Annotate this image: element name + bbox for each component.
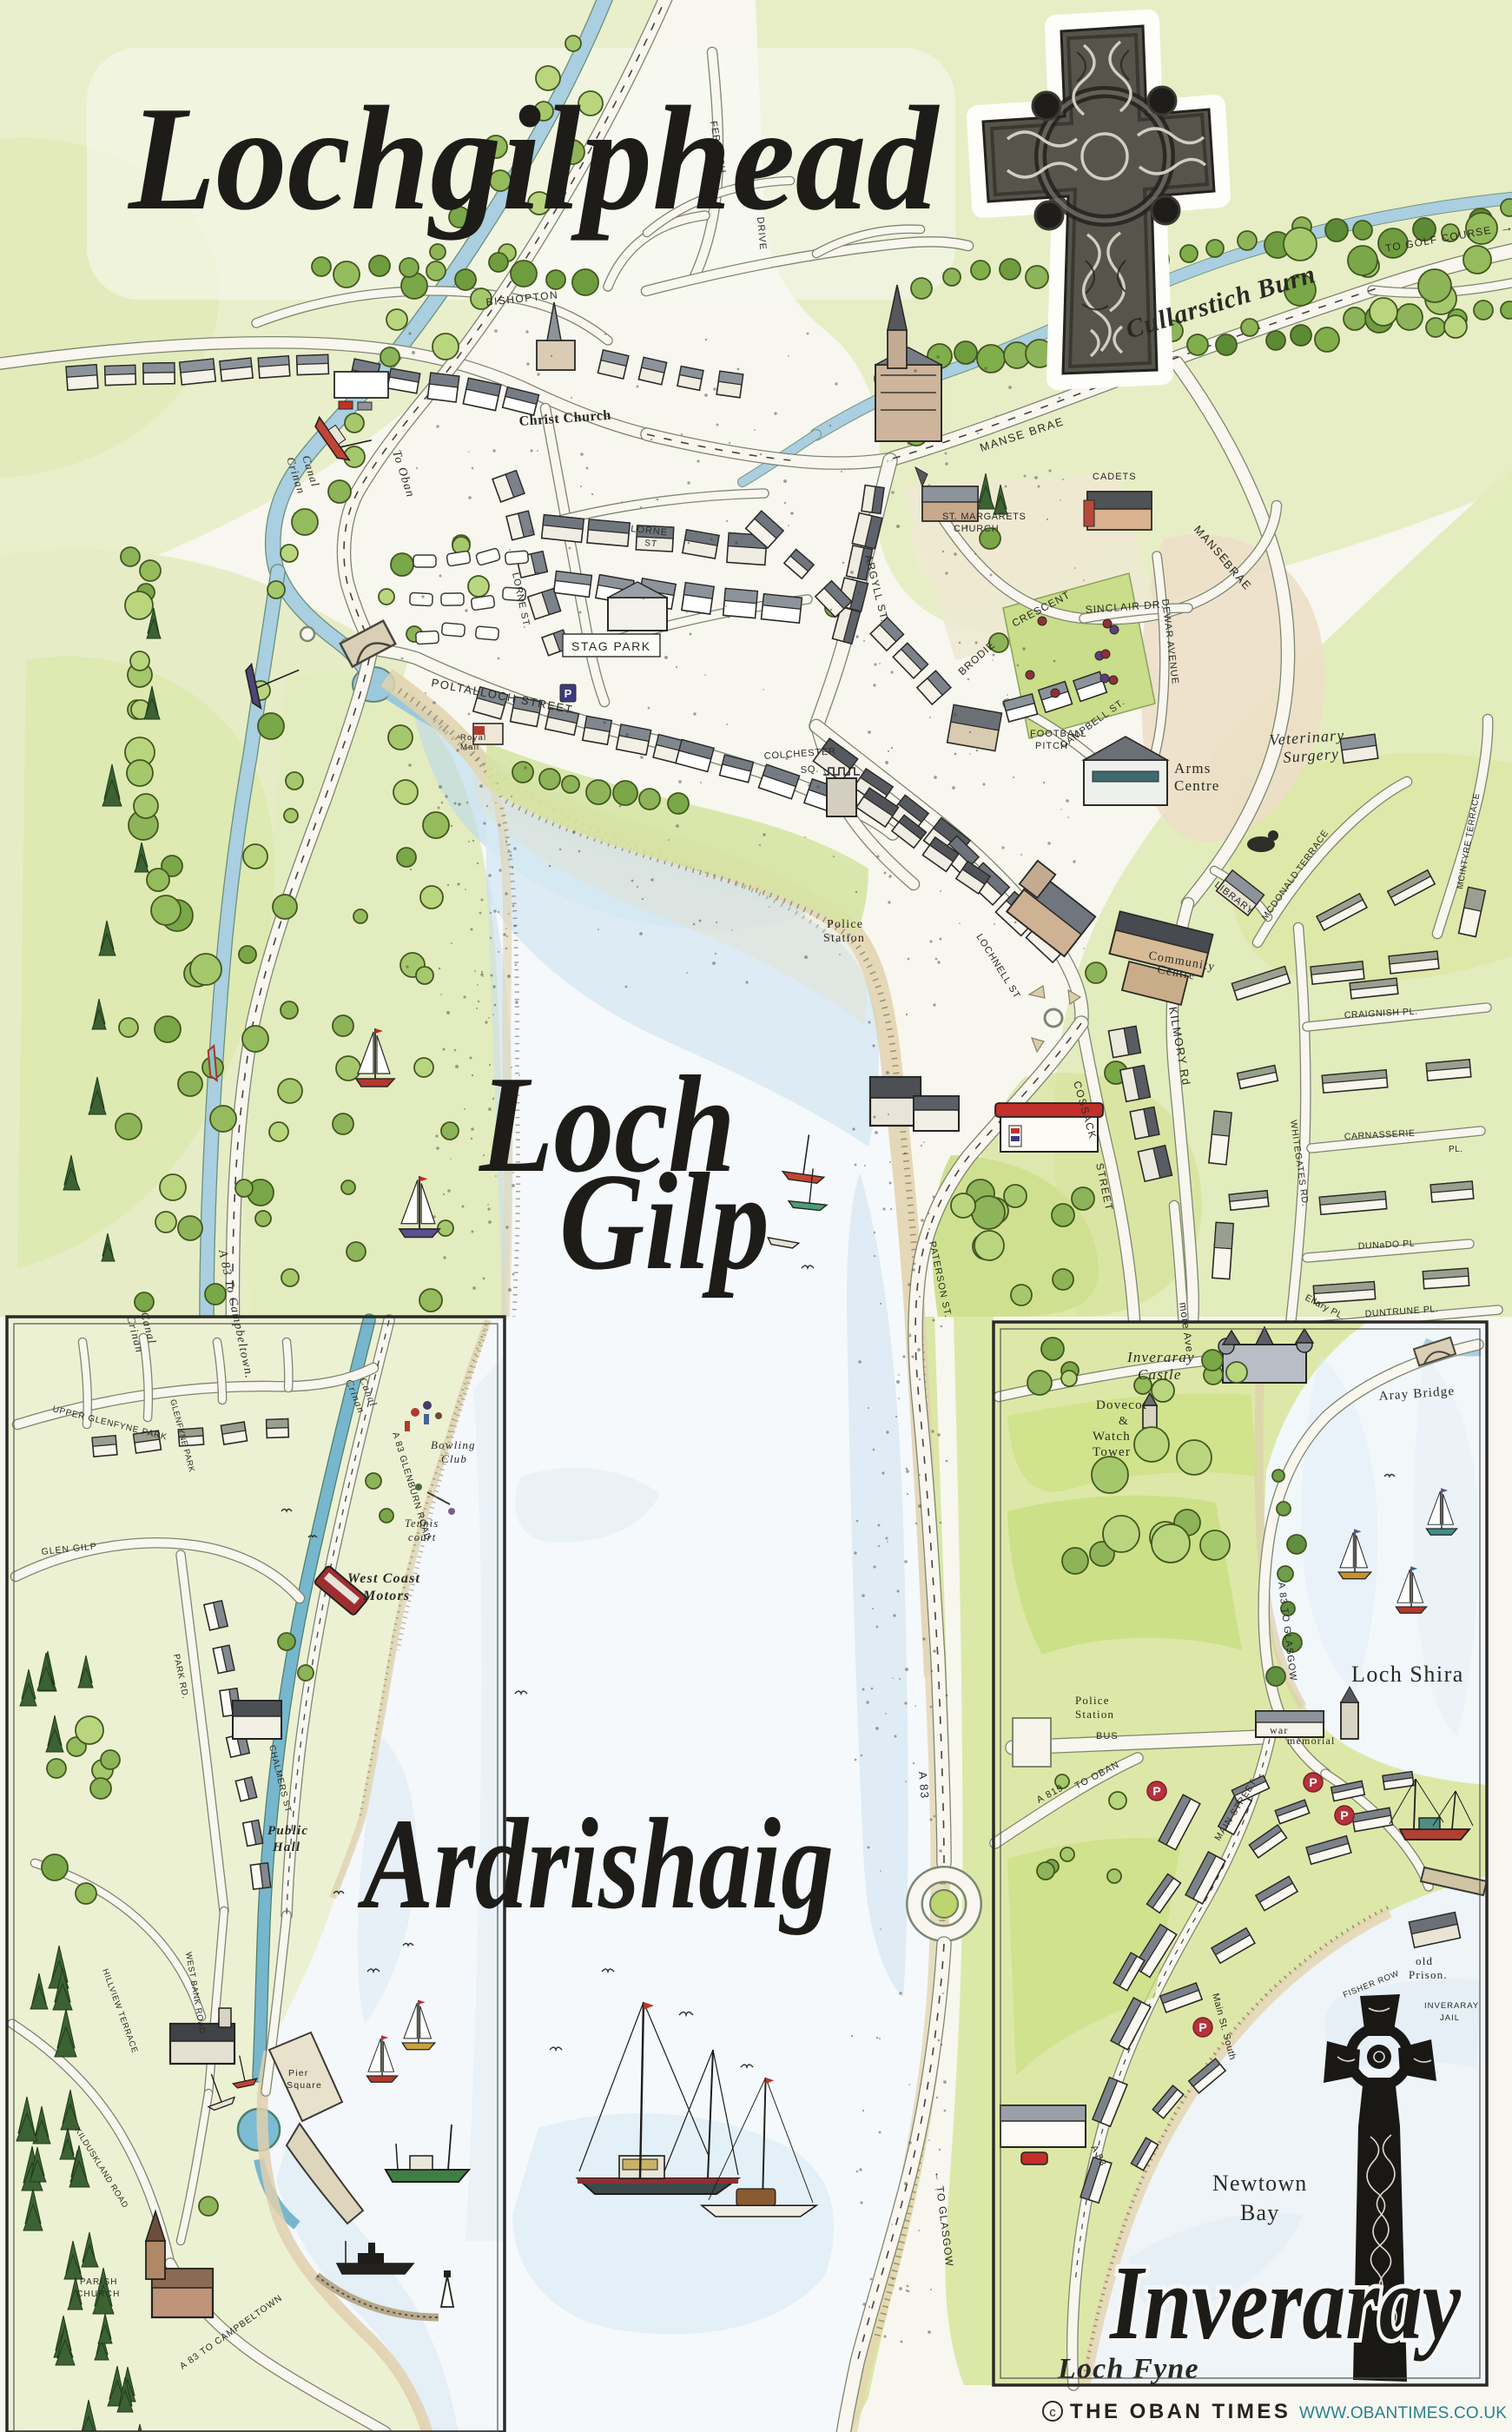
svg-text:Watch: Watch [1093, 1430, 1131, 1444]
svg-text:→: → [1499, 219, 1512, 236]
svg-text:&: & [1119, 1415, 1129, 1428]
svg-text:Gilp: Gilp [559, 1144, 769, 1299]
svg-text:CHURCH: CHURCH [76, 2290, 121, 2299]
svg-text:Pier: Pier [288, 2068, 308, 2078]
svg-text:Mail: Mail [460, 743, 479, 752]
svg-text:PITCH: PITCH [1035, 741, 1068, 751]
svg-text:P: P [1340, 1808, 1348, 1822]
svg-text:THE OBAN TIMES: THE OBAN TIMES [1070, 2400, 1291, 2423]
svg-text:INVERARAY: INVERARAY [1424, 2001, 1479, 2011]
svg-text:CADETS: CADETS [1093, 472, 1137, 482]
svg-text:Newtown: Newtown [1212, 2171, 1308, 2196]
svg-text:P: P [1309, 1775, 1317, 1789]
svg-text:Loch Shira: Loch Shira [1351, 1662, 1464, 1687]
svg-text:Bowling: Bowling [431, 1438, 476, 1451]
svg-text:Centre: Centre [1174, 777, 1220, 794]
svg-text:BUS: BUS [1096, 1731, 1119, 1741]
svg-text:ST. MARGARETS: ST. MARGARETS [942, 512, 1026, 522]
svg-text:P: P [565, 687, 572, 700]
svg-text:Prison.: Prison. [1409, 1968, 1448, 1981]
svg-text:Square: Square [287, 2080, 322, 2091]
svg-text:STAG PARK: STAG PARK [571, 639, 651, 653]
svg-text:c: c [1049, 2405, 1056, 2420]
svg-text:Hall: Hall [272, 1841, 300, 1854]
svg-text:West Coast: West Coast [347, 1571, 420, 1586]
svg-text:old: old [1416, 1954, 1433, 1967]
svg-text:Station: Station [823, 932, 865, 945]
svg-text:Club: Club [441, 1452, 467, 1465]
svg-text:ST: ST [644, 539, 658, 549]
svg-text:Ardrishaig: Ardrishaig [357, 1792, 834, 1936]
svg-text:Motors: Motors [362, 1589, 410, 1603]
svg-text:Police: Police [827, 918, 863, 931]
svg-text:memorial: memorial [1287, 1735, 1336, 1747]
svg-text:CHURCH: CHURCH [954, 524, 999, 534]
svg-text:court: court [408, 1531, 436, 1543]
svg-text:PARISH: PARISH [80, 2277, 118, 2287]
svg-text:A 83: A 83 [916, 1771, 932, 1800]
svg-text:SQ.: SQ. [800, 764, 819, 776]
svg-text:Dovecot: Dovecot [1096, 1398, 1147, 1412]
svg-text:JAIL: JAIL [1440, 2013, 1460, 2023]
svg-text:P: P [1152, 1784, 1160, 1798]
svg-text:Arms: Arms [1174, 760, 1212, 777]
svg-text:FOOTBALL: FOOTBALL [1030, 729, 1086, 739]
svg-text:Public: Public [267, 1824, 308, 1838]
svg-text:Police: Police [1075, 1694, 1110, 1707]
svg-text:Inveraray: Inveraray [1108, 2244, 1461, 2362]
svg-text:Tower: Tower [1093, 1445, 1131, 1459]
svg-text:Tennis: Tennis [405, 1517, 439, 1530]
svg-text:Lochgilphead: Lochgilphead [127, 76, 941, 241]
svg-text:Castle: Castle [1138, 1366, 1182, 1383]
svg-text:Royal: Royal [460, 733, 486, 743]
svg-text:PL.: PL. [1449, 1145, 1463, 1154]
svg-text:Station: Station [1075, 1708, 1114, 1721]
svg-text:Bay: Bay [1240, 2200, 1279, 2225]
svg-text:war: war [1270, 1724, 1289, 1736]
svg-text:P: P [1198, 2020, 1206, 2034]
svg-text:WWW.OBANTIMES.CO.UK: WWW.OBANTIMES.CO.UK [1299, 2404, 1507, 2422]
